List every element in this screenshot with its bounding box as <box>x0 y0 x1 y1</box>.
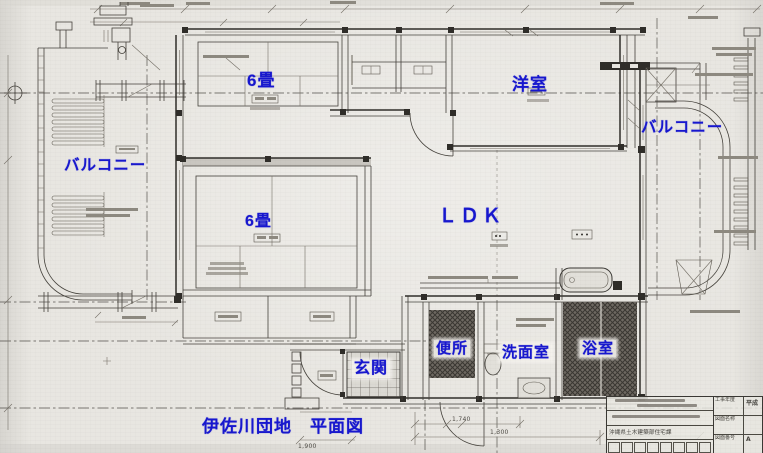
field-value: A <box>744 435 762 453</box>
ldk-fittings <box>490 230 592 247</box>
label-balcony-left: バルコニー <box>64 158 146 174</box>
title-block: 沖縄県土木建築部住宅課 工事年度 平成 図面名称 図面番号 A <box>606 396 763 453</box>
left-balcony <box>38 22 181 365</box>
dimension-text: 1,900 <box>298 443 317 450</box>
closet-corridor <box>330 35 456 156</box>
title-block-row-illegible <box>607 397 713 411</box>
title-block-left: 沖縄県土木建築部住宅課 <box>607 397 714 453</box>
label-ldk: ＬＤＫ <box>438 207 504 226</box>
grid-marker <box>4 82 27 104</box>
tatami-room-lower <box>180 156 371 344</box>
title-block-row-agency: 沖縄県土木建築部住宅課 <box>607 426 713 440</box>
title-block-row-illegible <box>607 411 713 425</box>
title-block-field: 図面番号 A <box>714 435 762 453</box>
title-block-row-stamps <box>607 440 713 453</box>
sheet-caption: 伊佐川団地 平面図 <box>202 418 364 435</box>
floorplan-linework <box>0 0 763 453</box>
right-balcony <box>600 28 760 313</box>
meter-pipe-detail <box>94 2 249 70</box>
title-block-field: 図面名称 <box>714 416 762 435</box>
field-label: 図面名称 <box>714 416 744 434</box>
label-entrance: 玄関 <box>352 360 390 378</box>
tatami-room-upper <box>198 42 353 110</box>
label-western-room: 洋室 <box>512 76 548 93</box>
north-corridor <box>96 80 186 101</box>
dimension-text: 1,740 <box>452 416 471 423</box>
scanned-floorplan-sheet: バルコニー 6畳 洋室 バルコニー 6畳 ＬＤＫ 玄関 便所 洗面室 浴室 伊佐… <box>0 0 763 453</box>
agency-name: 沖縄県土木建築部住宅課 <box>607 426 713 436</box>
label-balcony-right: バルコニー <box>641 120 723 136</box>
label-washroom: 洗面室 <box>500 344 552 361</box>
title-block-field: 工事年度 平成 <box>714 397 762 416</box>
label-tatami-upper: 6畳 <box>247 72 275 89</box>
label-toilet: 便所 <box>434 340 470 357</box>
field-value <box>744 416 762 434</box>
title-block-right: 工事年度 平成 図面名称 図面番号 A <box>714 397 762 453</box>
label-bathroom: 浴室 <box>580 340 616 357</box>
dimension-text: 1,300 <box>490 429 509 436</box>
entrance-area <box>285 296 408 409</box>
label-tatami-lower: 6畳 <box>245 214 272 230</box>
field-value: 平成 <box>744 397 762 415</box>
field-label: 工事年度 <box>714 397 744 415</box>
field-label: 図面番号 <box>714 435 744 453</box>
